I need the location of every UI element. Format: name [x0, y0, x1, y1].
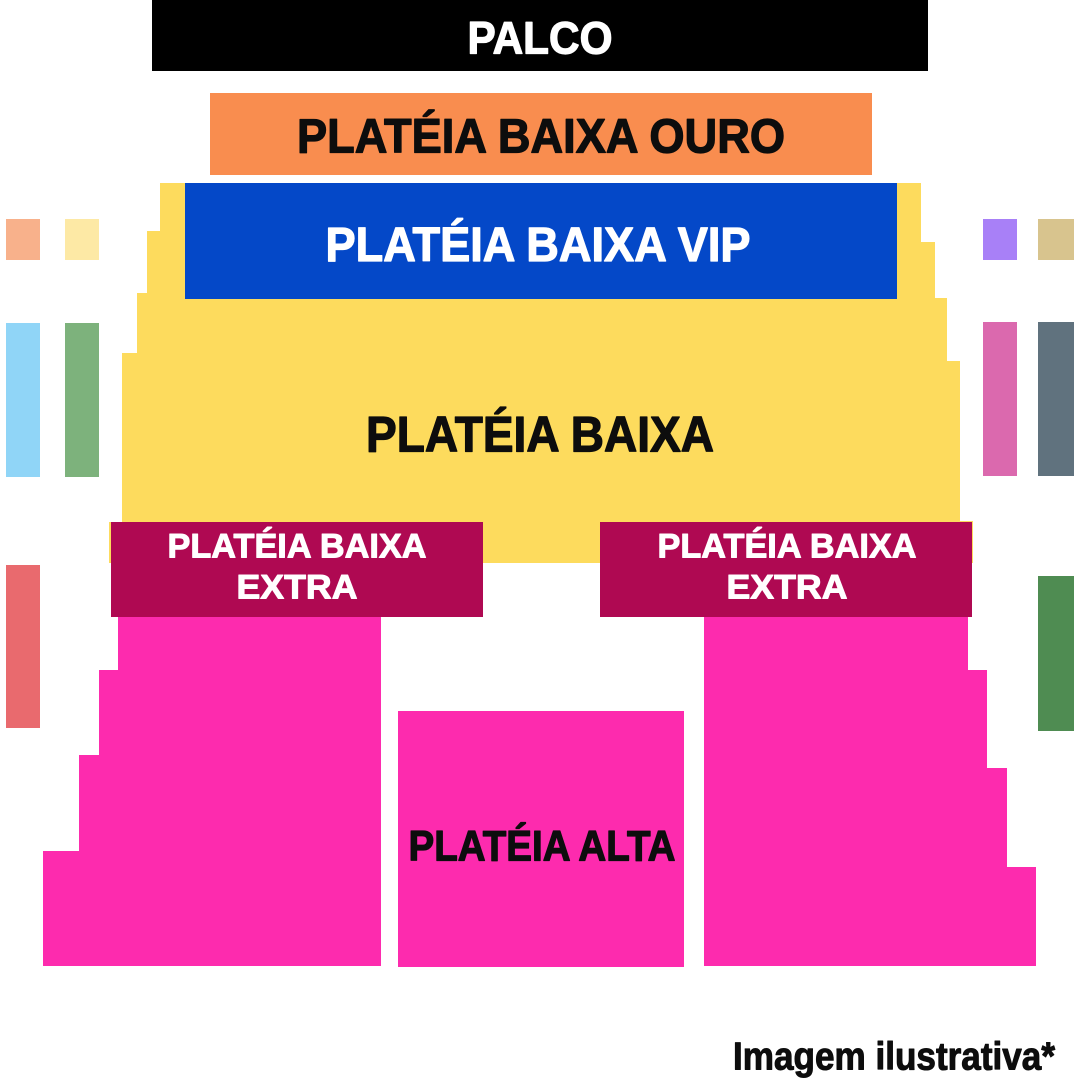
svg-text:Imagem ilustrativa*: Imagem ilustrativa*: [733, 1036, 1056, 1079]
svg-text:PLATÉIA ALTA: PLATÉIA ALTA: [409, 823, 676, 871]
svg-text:PLATÉIA BAIXA: PLATÉIA BAIXA: [168, 528, 427, 566]
svg-text:PLATÉIA BAIXA: PLATÉIA BAIXA: [658, 528, 917, 566]
svg-text:PLATÉIA BAIXA: PLATÉIA BAIXA: [366, 407, 714, 463]
svg-text:EXTRA: EXTRA: [237, 569, 358, 607]
svg-text:EXTRA: EXTRA: [727, 569, 848, 607]
svg-text:PALCO: PALCO: [468, 13, 613, 64]
svg-text:PLATÉIA BAIXA OURO: PLATÉIA BAIXA OURO: [297, 110, 785, 164]
svg-text:PLATÉIA BAIXA VIP: PLATÉIA BAIXA VIP: [326, 218, 751, 272]
